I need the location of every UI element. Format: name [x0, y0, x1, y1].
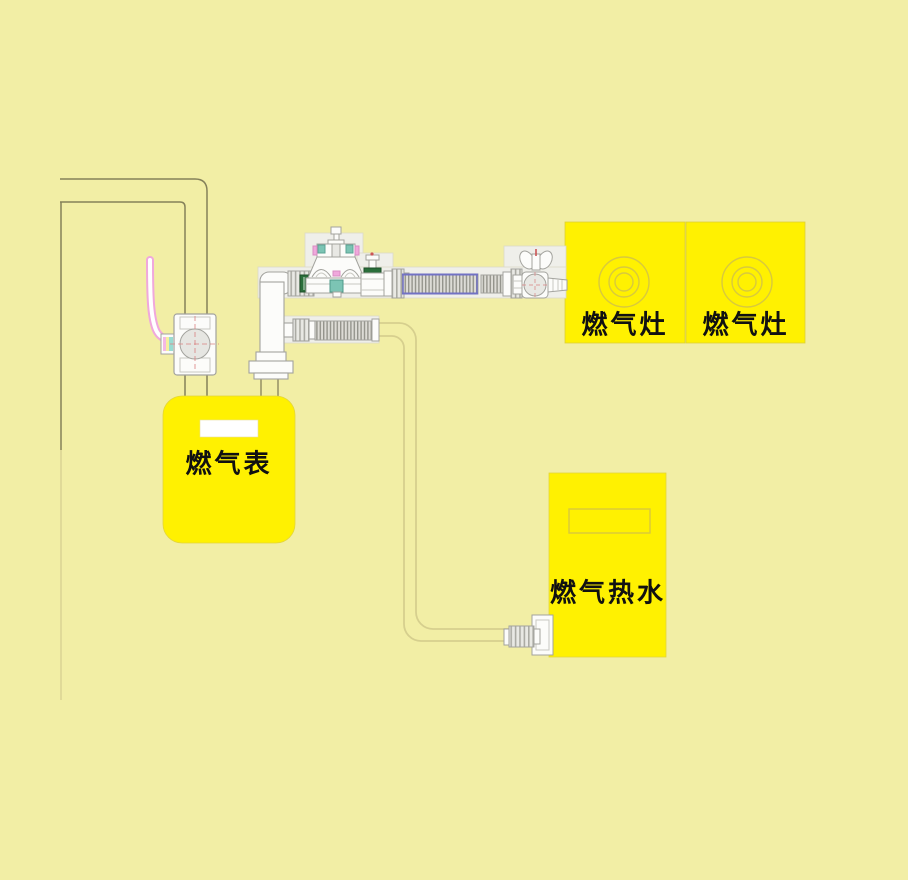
water-heater-label: 燃气热水 [550, 573, 666, 610]
corrugated-hose-blue-stripe [402, 274, 478, 294]
gas-stove-left-label: 燃气灶 [581, 305, 668, 342]
background [0, 0, 908, 880]
lower-corrugated-hose [315, 319, 379, 341]
water-heater-box [549, 473, 666, 657]
diagram-stage: 燃气表 燃气灶 燃气灶 燃气热水 [0, 0, 908, 880]
corrugated-hose-short [481, 275, 503, 293]
gas-meter-label: 燃气表 [185, 444, 272, 481]
piping-diagram [0, 0, 908, 880]
meter-display-window [200, 420, 258, 437]
gas-stove-right-label: 燃气灶 [702, 305, 789, 342]
